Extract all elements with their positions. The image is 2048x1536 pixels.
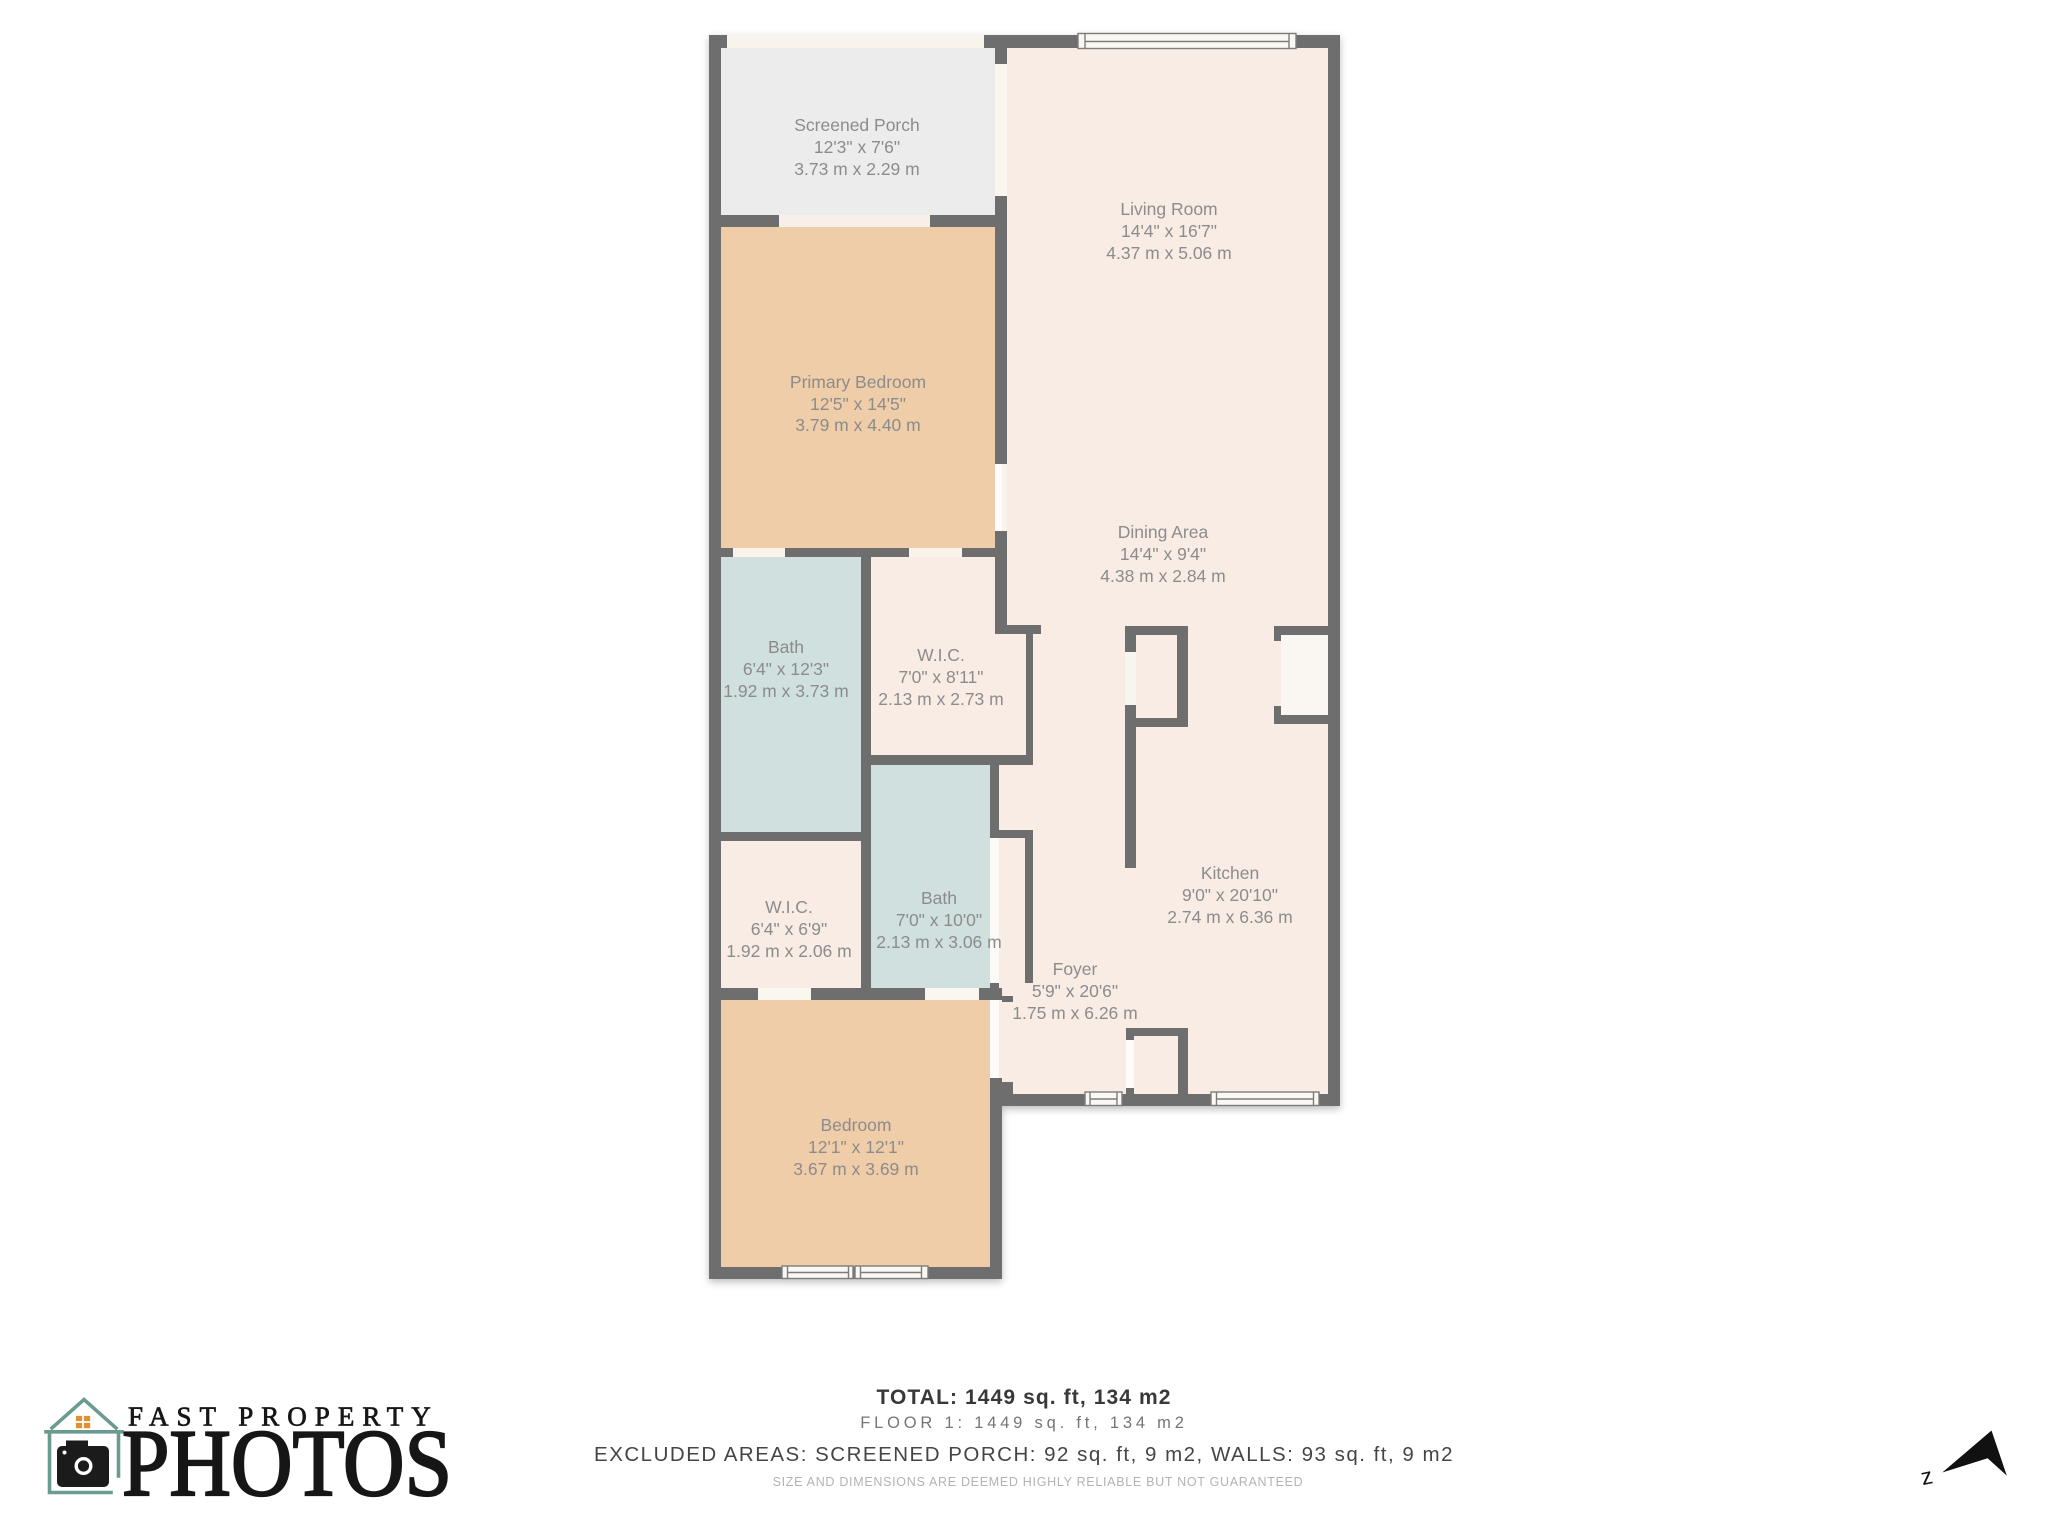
svg-text:FLOOR 1: 1449 sq. ft, 134 m2: FLOOR 1: 1449 sq. ft, 134 m2	[860, 1414, 1187, 1432]
svg-text:PHOTOS: PHOTOS	[122, 1410, 452, 1516]
svg-text:2.74 m x 6.36 m: 2.74 m x 6.36 m	[1167, 907, 1292, 927]
svg-text:Primary Bedroom: Primary Bedroom	[790, 372, 926, 392]
svg-text:3.73 m x 2.29 m: 3.73 m x 2.29 m	[794, 159, 919, 179]
svg-text:1.75 m x 6.26 m: 1.75 m x 6.26 m	[1012, 1003, 1137, 1023]
svg-text:12'1" x 12'1": 12'1" x 12'1"	[808, 1137, 904, 1157]
svg-text:14'4" x 9'4": 14'4" x 9'4"	[1120, 544, 1206, 564]
svg-text:z: z	[1918, 1462, 1935, 1490]
svg-text:Dining Area: Dining Area	[1118, 522, 1209, 542]
svg-text:3.79 m x 4.40 m: 3.79 m x 4.40 m	[795, 415, 920, 435]
svg-text:7'0" x 8'11": 7'0" x 8'11"	[899, 667, 984, 687]
svg-text:7'0" x 10'0": 7'0" x 10'0"	[896, 910, 982, 930]
svg-text:12'5" x 14'5": 12'5" x 14'5"	[810, 394, 906, 414]
svg-text:12'3" x 7'6": 12'3" x 7'6"	[814, 137, 900, 157]
svg-text:Foyer: Foyer	[1053, 959, 1098, 979]
svg-text:2.13 m x 3.06 m: 2.13 m x 3.06 m	[876, 932, 1001, 952]
svg-text:Bedroom: Bedroom	[820, 1115, 891, 1135]
svg-text:Bath: Bath	[768, 637, 804, 657]
svg-text:6'4" x 6'9": 6'4" x 6'9"	[751, 919, 828, 939]
svg-text:4.37 m x 5.06 m: 4.37 m x 5.06 m	[1106, 243, 1231, 263]
svg-text:4.38 m x 2.84 m: 4.38 m x 2.84 m	[1100, 566, 1225, 586]
svg-text:14'4" x 16'7": 14'4" x 16'7"	[1121, 221, 1217, 241]
svg-text:Bath: Bath	[921, 888, 957, 908]
svg-text:W.I.C.: W.I.C.	[765, 897, 813, 917]
svg-text:SIZE AND DIMENSIONS ARE DEEMED: SIZE AND DIMENSIONS ARE DEEMED HIGHLY RE…	[773, 1475, 1304, 1489]
svg-text:TOTAL: 1449 sq. ft, 134 m2: TOTAL: 1449 sq. ft, 134 m2	[876, 1386, 1171, 1409]
svg-text:W.I.C.: W.I.C.	[917, 645, 965, 665]
svg-text:1.92 m x 2.06 m: 1.92 m x 2.06 m	[726, 941, 851, 961]
svg-text:EXCLUDED AREAS: SCREENED PORCH: EXCLUDED AREAS: SCREENED PORCH: 92 sq. f…	[594, 1443, 1454, 1466]
svg-text:3.67 m x 3.69 m: 3.67 m x 3.69 m	[793, 1159, 918, 1179]
svg-text:1.92 m x 3.73 m: 1.92 m x 3.73 m	[723, 681, 848, 701]
svg-text:Kitchen: Kitchen	[1201, 863, 1259, 883]
svg-text:Living Room: Living Room	[1120, 199, 1217, 219]
svg-text:6'4" x 12'3": 6'4" x 12'3"	[743, 659, 829, 679]
svg-text:Screened Porch: Screened Porch	[794, 115, 920, 135]
svg-text:2.13 m x 2.73 m: 2.13 m x 2.73 m	[878, 689, 1003, 709]
svg-text:9'0" x 20'10": 9'0" x 20'10"	[1182, 885, 1278, 905]
svg-text:5'9" x 20'6": 5'9" x 20'6"	[1032, 981, 1118, 1001]
